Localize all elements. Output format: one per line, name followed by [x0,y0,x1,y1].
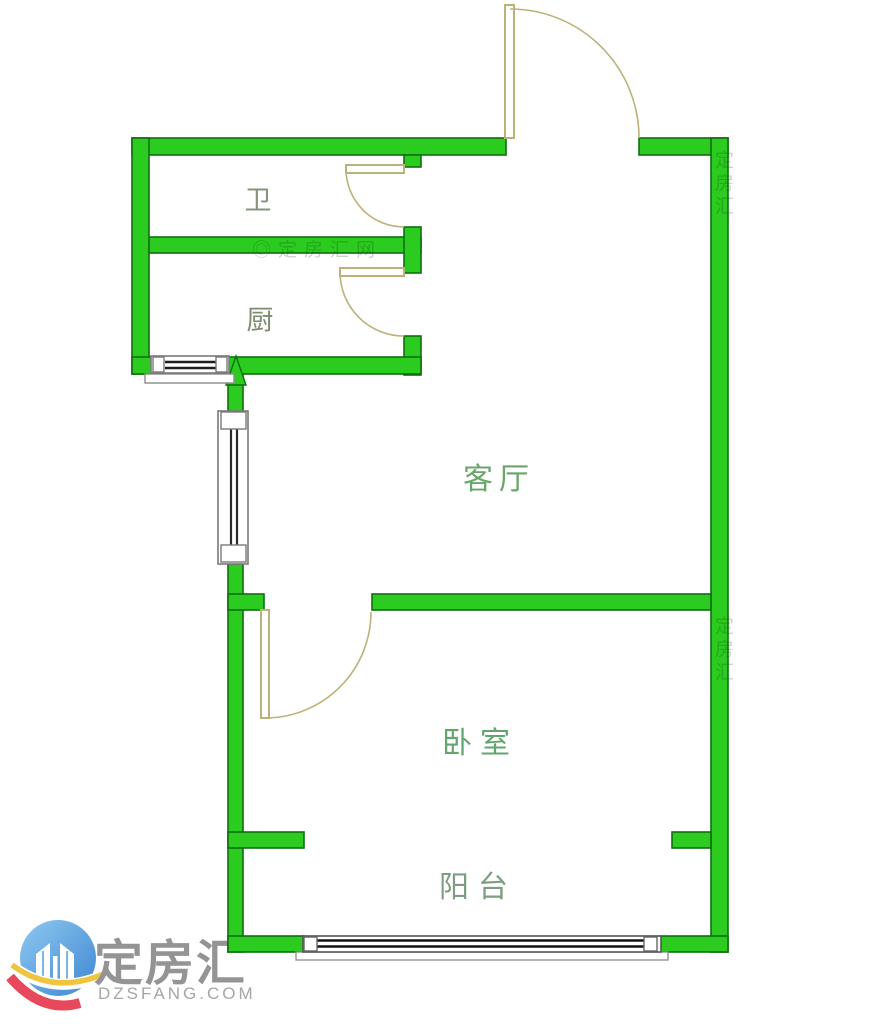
room-label-living-room: 客厅 [463,454,535,498]
wall-segment [228,936,304,952]
kitchen-door [340,268,404,336]
wall-segment [149,237,421,253]
wall-segment [404,227,421,273]
balcony-window [296,936,668,960]
wall-segment [132,138,506,155]
room-label-kitchen: 厨 [247,299,274,338]
wall-segment [228,832,304,848]
wall-segment [132,138,149,374]
windows [145,356,668,960]
wall-segment [228,564,243,952]
living-room-window [218,411,248,564]
wall-segment [225,357,421,374]
wall-segment [404,155,421,167]
wall-segment [711,138,728,952]
bedroom-door [261,610,371,718]
entrance-door [505,5,639,138]
room-label-bathroom: 卫 [245,179,272,218]
wall-segment [660,936,728,952]
bathroom-door [346,165,404,227]
wall-segment [672,832,711,848]
room-label-balcony: 阳台 [439,862,517,906]
wall-segment [228,594,264,610]
room-label-bedroom: 卧室 [442,718,518,762]
kitchen-window [145,356,234,383]
wall-segment [372,594,711,610]
floor-plan-image: 定房汇 DZSFANG.COM [0,0,882,1024]
